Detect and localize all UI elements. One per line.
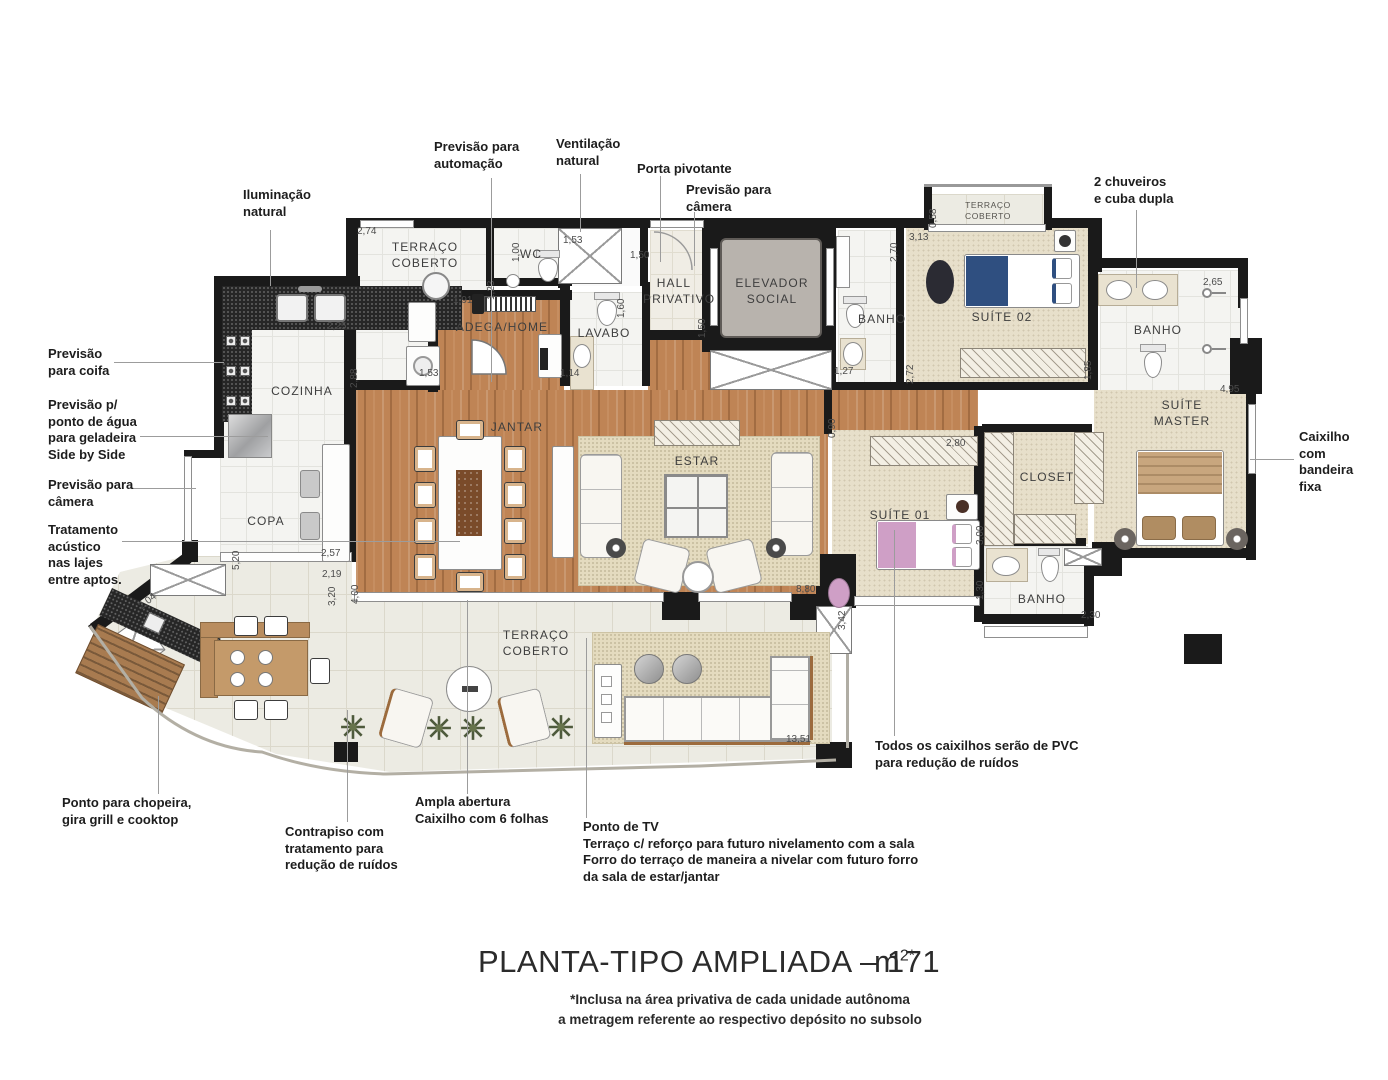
plan-title: PLANTA-TIPO AMPLIADA – 171: [478, 944, 940, 980]
dim-label: 2,57: [321, 548, 340, 559]
dim-label: 3,20: [327, 587, 338, 606]
dim-label: 2,65: [1203, 277, 1222, 288]
leader-line: [580, 174, 581, 232]
room-label-closet: CLOSET: [1014, 470, 1080, 486]
callout-previsao-coifa: Previsão para coifa: [48, 346, 148, 379]
dim-label: 1,53: [563, 235, 582, 246]
leader-line: [467, 600, 468, 794]
dim-label: 1,27: [834, 366, 853, 377]
callout-contrapiso: Contrapiso com tratamento para redução d…: [285, 824, 445, 874]
room-label-hall: HALL PRIVATIVO: [643, 276, 705, 307]
room-label-adega: ADEGA/HOME: [452, 320, 552, 336]
dim-label: 2,30: [1081, 610, 1100, 621]
dim-label: 3,13: [909, 232, 928, 243]
callout-ponto-tv: Ponto de TV Terraço c/ reforço para futu…: [583, 819, 963, 886]
dim-label: 1,91: [453, 295, 472, 306]
leader-line: [1250, 459, 1294, 460]
dim-label: 3,42: [837, 611, 848, 630]
callout-caixilho-bandeira: Caixilho com bandeira fixa: [1299, 429, 1388, 496]
plant: [427, 716, 451, 740]
leader-line: [491, 178, 492, 382]
room-label-elevador: ELEVADOR SOCIAL: [734, 276, 810, 307]
plant: [341, 715, 365, 739]
room-label-copa: COPA: [240, 514, 292, 530]
leader-line: [894, 530, 895, 736]
callout-tratamento-acustico: Tratamento acústico nas lajes entre apto…: [48, 522, 158, 589]
dim-label: 2,25: [327, 321, 346, 332]
dim-label: 2,72: [905, 365, 916, 384]
room-label-suite01: SUÍTE 01: [864, 508, 936, 524]
callout-caixilhos-pvc: Todos os caixilhos serão de PVC para red…: [875, 738, 1115, 771]
callout-previsao-camera-hall: Previsão para câmera: [686, 182, 806, 215]
dim-label: 2,88: [349, 369, 360, 388]
callout-ponto-agua-geladeira: Previsão p/ ponto de água para geladeira…: [48, 397, 178, 464]
room-label-banho-suite02: BANHO: [858, 312, 906, 328]
plan-title-unit: m2*: [874, 944, 915, 980]
terrace-outer-edge: [90, 626, 836, 774]
room-label-wc: WC: [516, 247, 546, 263]
plant: [549, 715, 573, 739]
dim-label: 0,58: [928, 209, 939, 228]
callout-iluminacao-natural: Iluminação natural: [243, 187, 353, 220]
dim-label: 1,50: [630, 250, 649, 261]
dim-label: 1,53: [419, 368, 438, 379]
room-label-suite02: SUÍTE 02: [962, 310, 1042, 326]
room-label-cozinha: COZINHA: [266, 384, 338, 400]
callout-2-chuveiros: 2 chuveiros e cuba dupla: [1094, 174, 1224, 207]
room-label-banho-suite01: BANHO: [1012, 592, 1072, 608]
dim-label: 2,70: [889, 243, 900, 262]
callout-ampla-abertura: Ampla abertura Caixilho com 6 folhas: [415, 794, 605, 827]
leader-line: [586, 638, 587, 818]
dim-label: 5,20: [231, 551, 242, 570]
leader-line: [694, 212, 695, 266]
leader-line: [122, 541, 460, 542]
room-label-banho-master: BANHO: [1130, 323, 1186, 339]
dim-label: 2,74: [357, 226, 376, 237]
dim-label: 1,14: [560, 368, 579, 379]
callout-previsao-camera-copa: Previsão para câmera: [48, 477, 168, 510]
callout-ponto-chopeira: Ponto para chopeira, gira grill e cookto…: [62, 795, 242, 828]
plan-footnote: *Inclusa na área privativa de cada unida…: [430, 990, 1050, 1031]
room-label-estar: ESTAR: [668, 454, 726, 470]
dim-label: 0,90: [827, 419, 838, 438]
dim-label: 1,30: [975, 581, 986, 600]
dim-label: 3,00: [975, 526, 986, 545]
plant: [461, 716, 485, 740]
leader-line: [347, 710, 348, 822]
dim-label: 2,80: [946, 438, 965, 449]
adega-fan: [472, 340, 506, 374]
room-label-suite-master: SUÍTE MASTER: [1146, 398, 1218, 429]
dim-label: 4,95: [1220, 384, 1239, 395]
room-label-terraco-principal: TERRAÇO COBERTO: [498, 628, 574, 659]
unit-m: m: [874, 944, 900, 979]
leader-line: [1136, 210, 1137, 288]
room-label-lavabo: LAVABO: [574, 326, 634, 342]
room-label-terraco-servico: TERRAÇO COBERTO: [375, 240, 475, 271]
room-label-jantar: JANTAR: [487, 420, 547, 436]
dim-label: 1,50: [697, 319, 708, 338]
dim-label: 2,19: [322, 569, 341, 580]
dim-label: 13,51: [786, 734, 811, 745]
leader-line: [158, 696, 159, 794]
floor-plan: 2,74 1,00 1,53 1,50 1,23 1,91 2,25 2,88 …: [0, 0, 1388, 1080]
room-label-terraco-suite02: TERRAÇO COBERTO: [952, 200, 1024, 222]
callout-porta-pivotante: Porta pivotante: [637, 161, 767, 178]
dim-label: 8,80: [796, 584, 815, 595]
dim-label: 1,60: [616, 299, 627, 318]
leader-line: [270, 230, 271, 286]
callout-previsao-automacao: Previsão para automação: [434, 139, 554, 172]
dim-label: 1,85: [1083, 361, 1094, 380]
dim-label: 4,00: [350, 585, 361, 604]
leader-line: [660, 176, 661, 262]
unit-sup: 2*: [900, 948, 915, 965]
